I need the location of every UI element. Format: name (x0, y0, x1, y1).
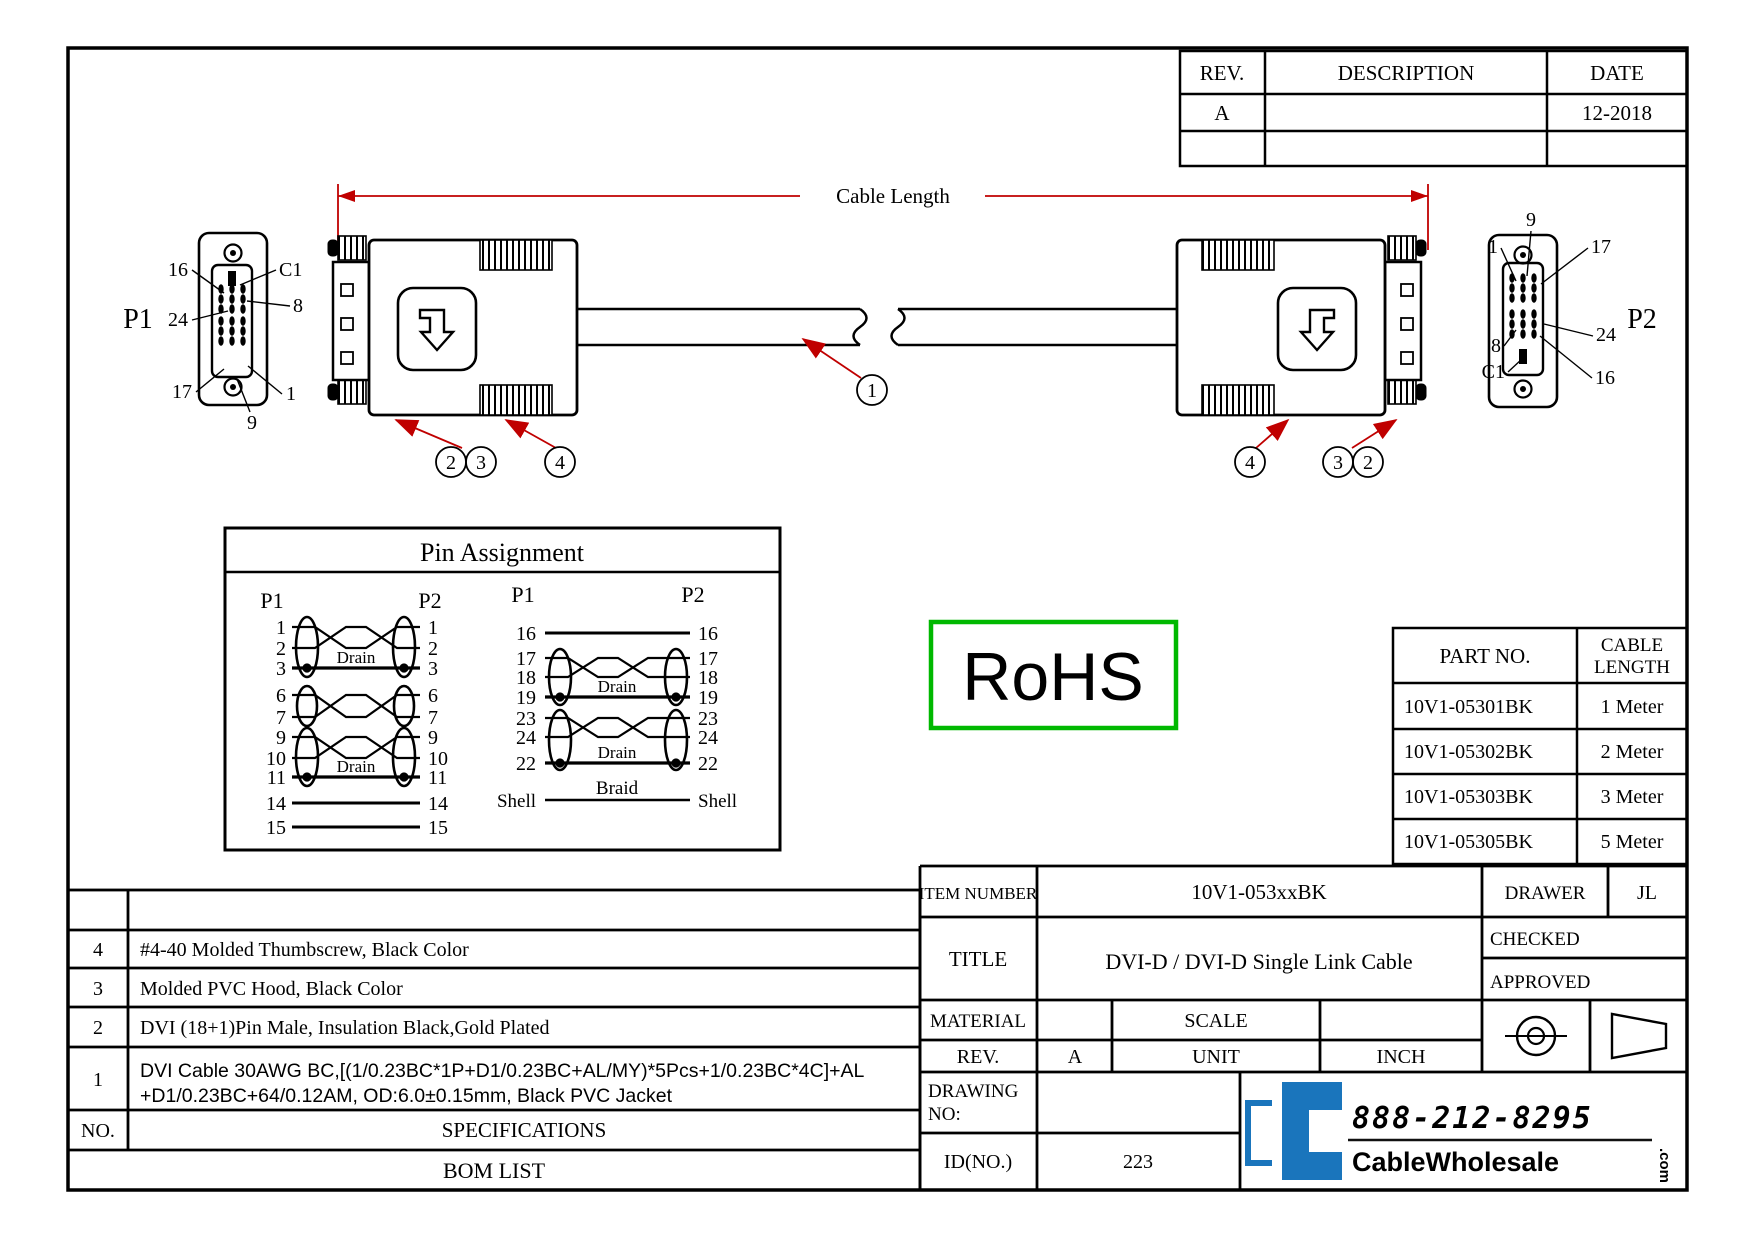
drain-label-2: Drain (337, 757, 376, 776)
pin-num: 14 (266, 793, 286, 815)
p2-pin-16: 16 (1595, 367, 1615, 389)
thumbscrew-top (338, 236, 366, 260)
drain-label-4: Drain (598, 743, 637, 762)
date-header: DATE (1590, 61, 1644, 85)
pin-num: 22 (516, 753, 536, 775)
pin-num: 24 (698, 727, 718, 749)
shell-label-right: Shell (698, 791, 737, 812)
cable-length-label: Cable Length (836, 184, 950, 208)
drain-label-1: Drain (337, 648, 376, 667)
p2-pin-24: 24 (1596, 324, 1616, 346)
pin-num: 6 (428, 685, 438, 707)
pin-assignment-title: Pin Assignment (420, 538, 585, 567)
title-label: TITLE (949, 947, 1007, 971)
thumbscrew-bottom (338, 380, 366, 404)
right-p1-header: P1 (511, 582, 534, 607)
p2-pin-8: 8 (1491, 335, 1501, 357)
logo-brand: CableWholesale (1352, 1147, 1559, 1177)
projection-cone-icon (1612, 1014, 1666, 1058)
callout-4-left: 4 (555, 452, 565, 474)
title-value: DVI-D / DVI-D Single Link Cable (1105, 949, 1412, 974)
bom-spec-header: SPECIFICATIONS (442, 1118, 607, 1142)
id-label: ID(NO.) (944, 1151, 1012, 1173)
callout-4-right: 4 (1245, 452, 1255, 474)
c1-blade (228, 271, 236, 286)
logo-tld: .com (1656, 1148, 1673, 1183)
connector-left-side-view (328, 236, 577, 415)
pin-num: 7 (276, 707, 286, 729)
p1-pin-8: 8 (293, 295, 303, 317)
pin-num: 15 (266, 817, 286, 839)
drawer-label: DRAWER (1505, 883, 1586, 904)
bom-no: 3 (93, 978, 103, 1000)
p1-pin-1: 1 (286, 383, 296, 405)
pin-assignment: Pin Assignment P1 P2 P1 P2 Drain Drain (225, 528, 780, 850)
p2-pin-c1: C1 (1482, 361, 1505, 383)
callout-1: 1 (867, 380, 877, 402)
id-value: 223 (1123, 1151, 1153, 1173)
rev-value: A (1214, 101, 1230, 125)
p2-label: P2 (1627, 304, 1657, 335)
pin-num: 7 (428, 707, 438, 729)
cablewholesale-logo: 888-212-8295 CableWholesale .com (1248, 1082, 1673, 1183)
part-length: 3 Meter (1601, 786, 1664, 808)
bom-no: 1 (93, 1069, 103, 1091)
right-p2-header: P2 (681, 582, 704, 607)
left-p1-header: P1 (260, 588, 283, 613)
p2-face-view: 9 1 17 8 24 C1 16 P2 (1482, 209, 1657, 407)
cable-length-header-1: CABLE (1601, 635, 1663, 656)
part-length: 2 Meter (1601, 741, 1664, 763)
p2-pin-1: 1 (1488, 236, 1498, 258)
pin-num: 19 (698, 687, 718, 709)
pin-num: 15 (428, 817, 448, 839)
pin-num: 24 (516, 727, 536, 749)
part-no: 10V1-05305BK (1404, 831, 1533, 853)
part-no-header: PART NO. (1440, 644, 1531, 668)
pin-num: 6 (276, 685, 286, 707)
bom-spec: #4-40 Molded Thumbscrew, Black Color (140, 939, 469, 961)
pin-num: 2 (276, 638, 286, 660)
thumbscrew-top (1388, 236, 1416, 260)
rev-header: REV. (1200, 61, 1245, 85)
p2-pin-9: 9 (1526, 209, 1536, 231)
rev-value: A (1068, 1046, 1083, 1068)
parts-table: PART NO. CABLE LENGTH 10V1-05301BK 10V1-… (1393, 628, 1687, 864)
p1-face-view: 16 C1 24 8 17 1 9 P1 (123, 233, 303, 434)
pin-num: 9 (428, 727, 438, 749)
p1-pin-9: 9 (247, 412, 257, 434)
rohs-badge: RoHS (931, 622, 1176, 728)
p1-pin-24: 24 (168, 309, 188, 331)
thumbscrew-bottom (1388, 380, 1416, 404)
p1-label: P1 (123, 304, 153, 335)
date-value: 12-2018 (1582, 101, 1652, 125)
cable-length-header-2: LENGTH (1594, 657, 1670, 678)
drain-label-3: Drain (598, 677, 637, 696)
item-number-label: ITEM NUMBER (919, 884, 1038, 903)
description-header: DESCRIPTION (1338, 61, 1475, 85)
pin-num: 16 (698, 623, 718, 645)
braid-label: Braid (596, 778, 639, 799)
left-p2-header: P2 (418, 588, 441, 613)
material-label: MATERIAL (930, 1011, 1026, 1032)
p2-pin-17: 17 (1591, 236, 1611, 258)
pin-num: 3 (276, 658, 286, 680)
pin-num: 18 (516, 667, 536, 689)
p1-pin-16: 16 (168, 259, 188, 281)
pin-num: 18 (698, 667, 718, 689)
bom-spec: Molded PVC Hood, Black Color (140, 978, 403, 1000)
callout-3-left: 3 (476, 452, 486, 474)
bom-no-header: NO. (81, 1120, 115, 1142)
part-no: 10V1-05302BK (1404, 741, 1533, 763)
part-no: 10V1-05301BK (1404, 696, 1533, 718)
bom-title: BOM LIST (443, 1158, 546, 1183)
rohs-label: RoHS (962, 639, 1143, 715)
drawing-canvas: REV. DESCRIPTION DATE A 12-2018 Cable Le… (0, 0, 1754, 1240)
callout-3-right: 3 (1333, 452, 1343, 474)
pin-num: 11 (428, 767, 447, 789)
bom-spec-line2: +D1/0.23BC+64/0.12AM, OD:6.0±0.15mm, Bla… (140, 1085, 673, 1107)
scale-label: SCALE (1184, 1010, 1247, 1032)
bom-table: 4 #4-40 Molded Thumbscrew, Black Color 3… (68, 890, 920, 1190)
right-wiring (545, 633, 690, 800)
checked-label: CHECKED (1490, 929, 1580, 950)
engineering-drawing-sheet: REV. DESCRIPTION DATE A 12-2018 Cable Le… (0, 0, 1754, 1240)
rev-label: REV. (957, 1046, 999, 1068)
pin-num: 14 (428, 793, 448, 815)
pin-num: 22 (698, 753, 718, 775)
pin-num: 16 (516, 623, 536, 645)
item-number-value: 10V1-053xxBK (1191, 880, 1326, 904)
approved-label: APPROVED (1490, 972, 1590, 993)
drawing-no-label-2: NO: (928, 1104, 961, 1125)
drawing-no-label-1: DRAWING (928, 1081, 1019, 1102)
pin-num: 9 (276, 727, 286, 749)
unit-label: UNIT (1192, 1046, 1240, 1068)
shell-label-left: Shell (497, 791, 536, 812)
p1-pin-c1: C1 (279, 259, 302, 281)
logo-phone: 888-212-8295 (1352, 1101, 1593, 1136)
c1-blade (1519, 349, 1527, 364)
pin-num: 1 (276, 617, 286, 639)
pin-num: 11 (267, 767, 286, 789)
callout-2-right: 2 (1363, 452, 1373, 474)
projection-symbols (1505, 1014, 1666, 1058)
pin-num: 19 (516, 687, 536, 709)
pin-num: 2 (428, 638, 438, 660)
part-length: 1 Meter (1601, 696, 1664, 718)
unit-value: INCH (1377, 1046, 1426, 1068)
bom-spec-line1: DVI Cable 30AWG BC,[(1/0.23BC*1P+D1/0.23… (140, 1060, 865, 1082)
logo-c-icon (1282, 1082, 1342, 1180)
bom-spec: DVI (18+1)Pin Male, Insulation Black,Gol… (140, 1017, 550, 1039)
cable (577, 309, 1177, 345)
logo-c-outline-icon (1248, 1103, 1272, 1163)
connector-right-side-view (1177, 236, 1426, 415)
pin-num: 3 (428, 658, 438, 680)
drawer-value: JL (1637, 882, 1657, 904)
bom-no: 4 (93, 939, 103, 961)
pin-num: 1 (428, 617, 438, 639)
callout-2-left: 2 (446, 452, 456, 474)
part-no: 10V1-05303BK (1404, 786, 1533, 808)
bom-no: 2 (93, 1017, 103, 1039)
p1-pin-17: 17 (172, 381, 192, 403)
part-length: 5 Meter (1601, 831, 1664, 853)
